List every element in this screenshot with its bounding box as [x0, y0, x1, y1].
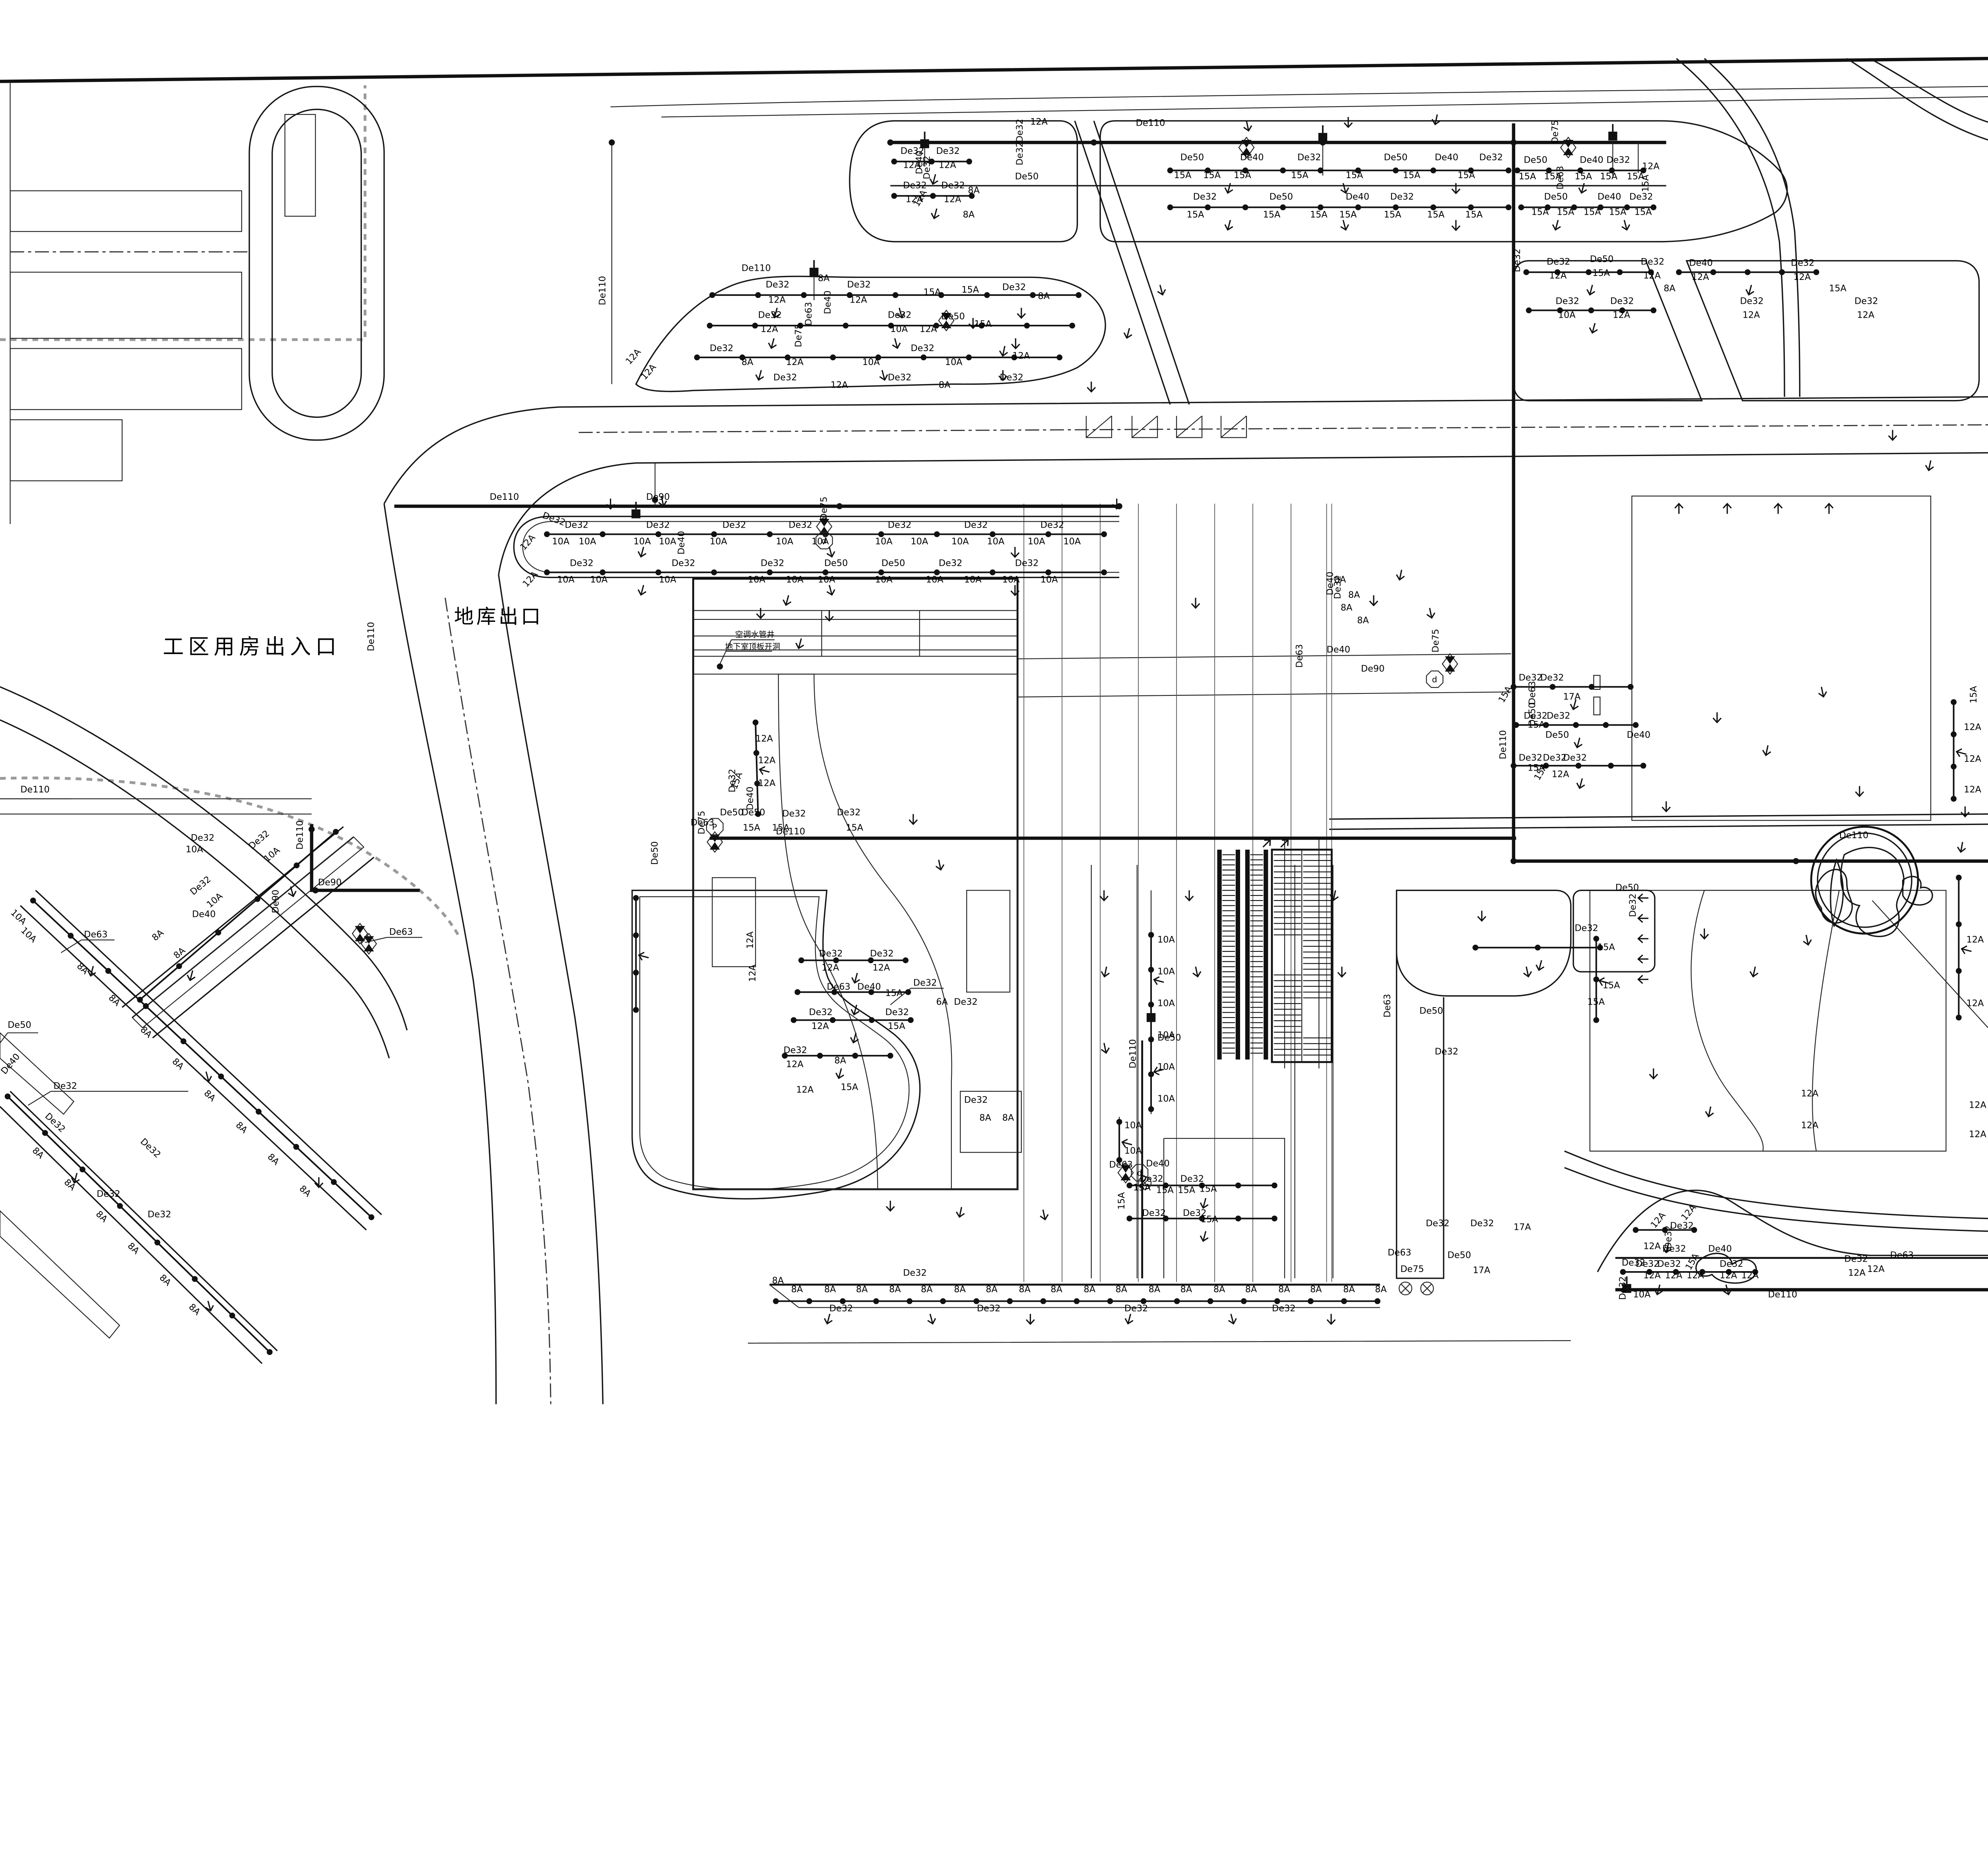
pipe-label: De63 [389, 927, 413, 937]
pipe-label: 12A [1679, 1202, 1699, 1223]
pipe-label: De32 [1610, 296, 1634, 307]
spray-emitter-icon [1638, 935, 1648, 943]
pipe-label: De40 [914, 151, 924, 174]
pipe-label: 10A [911, 536, 928, 547]
spray-emitter-icon [1431, 114, 1441, 125]
pipe-label: 10A [1633, 1289, 1650, 1300]
spray-emitter-icon [1452, 220, 1460, 230]
pipe-label: De32 [964, 1095, 988, 1105]
pipe-label: 10A [964, 575, 982, 585]
pipe-mains [0, 123, 1988, 1289]
pipe-label: 15A [1200, 1184, 1217, 1194]
sprinkler-dot [990, 569, 996, 575]
sprinkler-dot [694, 355, 700, 361]
pipe-label: 12A [1801, 1120, 1819, 1130]
sprinkler-dot [1235, 1182, 1241, 1188]
pipe-label: De32 [954, 997, 977, 1007]
pipe-label: 15A [1574, 171, 1592, 182]
pipe-label: 12A [758, 755, 776, 765]
pipe-label: De32 [148, 1209, 171, 1219]
sprinkler-dot [903, 957, 909, 963]
spray-emitter-icon [1452, 183, 1460, 194]
pipe-label: 15A [1174, 170, 1192, 181]
sprinkler-dot [333, 829, 339, 835]
sprinkler-dot [1593, 1017, 1599, 1023]
pipe-label: 10A [1558, 310, 1576, 320]
pipe-label: 8A [1375, 1284, 1387, 1295]
pump-cross [1423, 1284, 1431, 1293]
pipe-label: De50 [881, 558, 905, 569]
pipe-label: 12A [1643, 1241, 1661, 1251]
pipe-node-dot [887, 140, 893, 146]
pipe-label: De63 [804, 302, 814, 325]
pipe-label: 15A [1291, 170, 1309, 181]
sprinkler-dot [215, 930, 221, 936]
pipe-label: De32 [913, 978, 937, 988]
spray-emitter-icon [1586, 284, 1596, 296]
pipe-label: 17A [1473, 1265, 1490, 1276]
pipe-label: De32 [1002, 282, 1026, 292]
spray-emitter-icon [1749, 966, 1759, 977]
sprinkler-dot [843, 323, 849, 329]
sprinkler-dot [891, 159, 897, 165]
sprinkler-dot [773, 1298, 779, 1304]
pipe-label: De32 [1435, 1046, 1458, 1057]
sprinkler-dot [1375, 1298, 1380, 1304]
spray-emitter-icon [1713, 712, 1721, 722]
sprinkler-dot [1056, 355, 1062, 361]
pipe-label: De110 [598, 276, 608, 305]
boundary-lines [0, 58, 1988, 939]
sprinkler-dot [1593, 977, 1599, 982]
pipe-label: 8A [1002, 1113, 1014, 1123]
pipe-label: 15A [743, 823, 760, 833]
pipe-label: 10A [1063, 536, 1081, 547]
sprinkler-dot [869, 1017, 875, 1023]
pipe-label: 12A [1552, 769, 1569, 780]
pipe-label: 6A [936, 997, 948, 1007]
spray-emitter-icon [1675, 504, 1683, 514]
sprinkler-dot [80, 1167, 85, 1173]
pipe-label: De110 [366, 622, 377, 651]
pipe-label: 15A [1592, 268, 1610, 278]
pipe-label: 15A [1603, 980, 1620, 991]
pipe-label: 12A [1030, 116, 1048, 127]
pipe-label: 8A [856, 1284, 868, 1295]
pipe-label: De32 [1540, 672, 1564, 683]
sprinkler-dot [1608, 763, 1614, 769]
sprinkler-dot [1041, 1298, 1046, 1304]
pipe-label: De32 [1000, 372, 1023, 382]
pipe-label: De110 [1498, 730, 1508, 759]
sprinkler-dot [908, 1017, 914, 1023]
pipe-label: 8A [979, 1113, 991, 1123]
sprinkler-dot [1126, 1182, 1132, 1188]
pipe-label: 10A [1002, 575, 1020, 585]
pipe-label: De32 [977, 1303, 1000, 1314]
pipe-label: De32 [911, 343, 934, 353]
pipe-label: De32 [784, 1045, 807, 1056]
pipe-label: 8A [1348, 590, 1360, 600]
pipe-label: De50 [1015, 171, 1039, 182]
pipe-label: De32 [1512, 249, 1522, 272]
pipe-label: De32 [829, 1303, 853, 1314]
spray-emitter-icon [1100, 890, 1108, 901]
pipe-label: De32 [870, 949, 893, 959]
pipe-label: 15A [923, 287, 941, 297]
spray-emitter-icon [1087, 382, 1095, 392]
sprinkler-dot [1208, 1298, 1213, 1304]
spray-emitter-icon [186, 969, 196, 981]
spray-emitter-icon [1762, 744, 1772, 756]
pipe-label: 10A [951, 536, 969, 547]
spray-emitter-icon [1825, 504, 1833, 514]
callout-ac-pipe-shaft: 空调水管井 [735, 630, 775, 639]
spray-emitter-icon [1889, 430, 1897, 440]
pipe-label: 8A [835, 1055, 846, 1066]
sprinkler-dot [229, 1312, 235, 1318]
sprinkler-dot [254, 896, 260, 902]
spray-emitter-icon [1153, 976, 1165, 986]
pipe-label: De32 [1636, 1259, 1659, 1269]
sprinkler-dot [1586, 269, 1592, 275]
pipe-label: De32 [1547, 256, 1570, 267]
pipe-node-dot [1091, 140, 1097, 146]
sprinkler-dot [1951, 699, 1957, 705]
pipe-label: De40 [1240, 152, 1264, 163]
sprinkler-dot [1101, 531, 1107, 537]
spray-emitter-icon [935, 859, 945, 870]
sprinkler-dot [709, 292, 715, 298]
pipe-label: De110 [490, 492, 519, 502]
pipe-label: 10A [875, 575, 893, 585]
spray-emitter-icon [757, 608, 765, 618]
parking-area-top-left [10, 82, 384, 524]
hatched-plazas [1573, 496, 1946, 1151]
sprinkler-dot [852, 1053, 858, 1059]
sprinkler-dot [1620, 1269, 1626, 1275]
pipe-label: 12A [1794, 272, 1811, 282]
pipe-label: 8A [1180, 1284, 1192, 1295]
pipe-label: 12A [1801, 1089, 1819, 1099]
pipe-label: 12A [1549, 271, 1567, 281]
pipe-label: 8A [791, 1284, 803, 1295]
pipe-label: 8A [1357, 615, 1369, 625]
sprinkler-dot [887, 1053, 893, 1059]
pipe-label: De50 [650, 841, 660, 865]
pipe-node-dot [1510, 140, 1516, 146]
pipe-node-dot [1793, 858, 1799, 864]
pipe-label: De110 [1136, 118, 1165, 128]
pipe-label: 8A [1019, 1284, 1031, 1295]
pipe-label: De50 [8, 1020, 31, 1030]
pipe-label: 12A [624, 347, 643, 367]
quick-coupling-valve-icon [810, 268, 818, 276]
pipe-label: De63 [1890, 1250, 1914, 1260]
sprinkler-dot [1617, 269, 1623, 275]
sprinkler-dot [1603, 722, 1609, 728]
pipe-label: 12A [521, 569, 540, 589]
spray-emitter-icon [1925, 460, 1935, 471]
planting-islands [514, 121, 1988, 1308]
pipe-label: De32 [1193, 192, 1217, 202]
spray-emitter-icon [782, 594, 792, 606]
pipe-label: De75 [793, 324, 804, 347]
sprinkler-dot [1593, 936, 1599, 942]
pipe-label: 10A [557, 575, 575, 585]
sprinkler-dot [1205, 204, 1211, 210]
spray-emitter-icon [1638, 894, 1648, 902]
spray-emitter-icon [1192, 598, 1200, 608]
pipe-label: 8A [954, 1284, 966, 1295]
sprinkler-dot [966, 355, 972, 361]
pipe-label: 15A [1598, 942, 1615, 953]
sprinkler-dot [1523, 269, 1529, 275]
pipe-label: 12A [1967, 934, 1984, 945]
pipe-label: De32 [1426, 1218, 1449, 1229]
pipe-label: De50 [1545, 730, 1569, 740]
pipe-label: 12A [1867, 1264, 1885, 1274]
pipe-label: 12A [747, 964, 758, 982]
pipe-label: 12A [920, 324, 937, 334]
pipe-label: 12A [796, 1085, 814, 1095]
sprinkler-dot [1506, 204, 1512, 210]
pipe-label: 15A [1263, 210, 1281, 220]
pipe-label: 15A [1969, 686, 1979, 703]
pipe-label: De32 [1662, 1244, 1686, 1254]
pipe-label: De63 [1382, 994, 1392, 1017]
spray-emitter-icon [1227, 1313, 1237, 1325]
pipe-label: 8A [968, 185, 980, 196]
pipe-label: De40 [192, 909, 215, 919]
sprinkler-dot [1956, 875, 1962, 881]
spray-emitter-icon [909, 814, 917, 824]
pipe-node-dot [837, 503, 843, 509]
pipe-label: De32 [541, 510, 567, 528]
sprinkler-dot [369, 1214, 375, 1220]
sprinkler-dot [1526, 307, 1532, 313]
pipe-label: 10A [987, 536, 1004, 547]
sprinkler-dot [633, 895, 639, 901]
sprinkler-dot [1393, 167, 1399, 173]
pipe-label: De50 [1615, 882, 1639, 893]
spray-emitter-icon [1620, 219, 1631, 231]
pipe-label: De32 [727, 769, 738, 792]
pipe-label: 8A [30, 1145, 46, 1161]
spray-emitter-icon [1426, 607, 1436, 619]
pipe-label: 12A [761, 324, 778, 334]
pipe-label: 12A [639, 362, 658, 382]
spray-emitter-icon [886, 1201, 894, 1211]
sprinkler-dot [1633, 722, 1639, 728]
pipe-label: De32 [758, 310, 782, 320]
pipe-label: 10A [710, 536, 727, 547]
pipe-label: 10A [205, 891, 225, 910]
spray-emitter-icon [1638, 955, 1648, 963]
spray-emitter-icon [755, 369, 765, 381]
sprinkler-dot [893, 292, 899, 298]
spray-emitter-icon [1242, 120, 1252, 132]
spray-emitter-icon [1156, 284, 1167, 296]
spray-emitter-icon [1370, 595, 1378, 606]
spray-emitter-icon [1327, 1314, 1335, 1324]
sprinkler-dot [794, 989, 800, 995]
pipe-label: De110 [20, 784, 50, 795]
pipe-label: 15A [1640, 175, 1651, 192]
pipe-label: De32 [1606, 155, 1630, 165]
pipe-label: De32 [773, 372, 797, 382]
spray-emitter-icon [1573, 737, 1584, 749]
pipe-label: 15A [1384, 210, 1401, 220]
quick-coupling-valve-icon [631, 509, 640, 518]
pipe-label: De32 [766, 280, 789, 290]
sprinkler-dot [1280, 204, 1286, 210]
sprinkler-dot [1650, 307, 1656, 313]
pipe-label: De32 [565, 520, 588, 530]
pipe-label: 8A [75, 961, 91, 977]
sprinkler-dot [1272, 1215, 1277, 1221]
lateral-pipe [140, 832, 336, 1000]
pipe-label: De32 [247, 828, 272, 851]
pipe-label: 8A [939, 380, 951, 390]
sprinkler-dot [1069, 323, 1075, 329]
sprinkler-dot [1813, 269, 1819, 275]
sprinkler-dot [1535, 945, 1541, 951]
pipe-label: 15A [1458, 170, 1475, 181]
spray-emitter-icon [999, 345, 1009, 357]
sprinkler-dot [1107, 1298, 1113, 1304]
pipe-label: De40 [1689, 258, 1712, 268]
pipe-label: De75 [819, 497, 829, 520]
sprinkler-dot [1779, 269, 1785, 275]
sprinkler-dot [176, 963, 182, 969]
sprinkler-dot [1956, 968, 1962, 974]
spray-emitter-icon [1745, 284, 1755, 296]
pipe-label: De32 [1142, 1208, 1166, 1218]
sprinkler-dot [1589, 684, 1595, 690]
pipe-label: 8A [1116, 1284, 1128, 1295]
pipe-label: De50 [1419, 1006, 1443, 1016]
pipe-label: 15A [1156, 1185, 1174, 1196]
sprinkler-dot [1518, 204, 1524, 210]
spray-emitter-icon [1192, 966, 1202, 977]
pipe-label: De50 [824, 558, 848, 569]
pipe-label: 10A [945, 357, 963, 367]
sprinkler-dot [294, 862, 300, 868]
sprinkler-dot [1951, 764, 1957, 770]
sprinkler-dot [1573, 722, 1579, 728]
pipe-label: 12A [822, 963, 839, 973]
sprinkler-dot [891, 193, 897, 199]
pipe-label: 12A [812, 1021, 829, 1031]
pipe-labels-layer: De110De90De110De110De110De90De90De63De63… [0, 116, 1986, 1317]
spray-emitter-icon [1649, 1068, 1657, 1079]
pipe-label: De50 [941, 311, 965, 322]
pipe-label: 15A [1340, 210, 1357, 220]
pipe-label: 15A [1201, 1214, 1218, 1225]
pipe-label: De32 [570, 558, 593, 569]
pipe-label: 8A [742, 357, 753, 367]
pipe-label: De50 [1157, 1033, 1181, 1043]
symbols-layer: dPdd [309, 114, 1969, 1295]
pipe-label: 8A [818, 273, 830, 283]
pipe-label: 15A [1557, 207, 1574, 217]
pipe-label: 12A [768, 295, 786, 305]
pipe-label: De32 [761, 558, 784, 569]
zone-label-garage-exit: 地库出口 [454, 605, 543, 628]
pipe-label: 8A [1341, 603, 1353, 613]
sprinkler-dot [1242, 204, 1248, 210]
pipe-label: 10A [1157, 1093, 1175, 1104]
pipe-label: 8A [963, 210, 975, 220]
pipe-label: 8A [1149, 1284, 1161, 1295]
pipe-label: De32 [1628, 893, 1638, 917]
pipe-label: De32 [1547, 711, 1570, 721]
pipe-label: De50 [1270, 192, 1293, 202]
sprinkler-dot [1241, 1298, 1247, 1304]
sprinkler-dot [1628, 684, 1634, 690]
sprinkler-dot [930, 193, 936, 199]
spray-emitter-icon [835, 1067, 845, 1079]
pipe-label: 15A [846, 823, 863, 833]
pipe-label: 8A [921, 1284, 933, 1295]
pipe-label: 12A [1967, 998, 1984, 1008]
pipe-label: De32 [888, 310, 911, 320]
pipe-label: De32 [1844, 1254, 1868, 1264]
pipe-label: De32 [1015, 142, 1025, 165]
pipe-label: De32 [1617, 1276, 1628, 1300]
sprinkler-dot [920, 355, 926, 361]
pipe-label: De32 [837, 808, 860, 818]
pipe-label: 12A [1720, 1270, 1737, 1281]
pipe-label: De32 [1720, 1259, 1743, 1269]
sprinkler-dot [143, 1003, 149, 1009]
sprinkler-dot [30, 898, 36, 904]
pipe-label: De40 [745, 786, 755, 810]
sprinkler-dot [1074, 1298, 1080, 1304]
pipe-label: De32 [1390, 192, 1413, 202]
pipe-label: 12A [745, 931, 755, 949]
sprinkler-dot [105, 968, 111, 974]
pipe-label: 12A [1964, 754, 1981, 764]
sprinkler-dot [830, 355, 836, 361]
quick-coupling-valve-icon [1318, 133, 1327, 142]
pipe-label: 8A [150, 927, 166, 943]
pipe-label: De63 [1555, 166, 1566, 189]
pipe-label: 10A [1124, 1146, 1142, 1156]
sprinkler-dot [907, 1298, 912, 1304]
pipe-label: 15A [1465, 210, 1483, 220]
spray-emitter-icon [1705, 1106, 1714, 1117]
zone-label-work-area: 工区用房出入口 [163, 635, 341, 659]
pipe-label: 10A [875, 536, 893, 547]
pipe-label: De40 [1327, 645, 1350, 655]
pipe-label: De110 [1839, 830, 1869, 841]
pipe-label: De40 [1346, 192, 1369, 202]
callout-slab-opening: 地下室顶板开洞 [725, 642, 780, 651]
sprinkler-dot [1472, 945, 1478, 951]
pipe-label: De40 [1708, 1244, 1732, 1254]
spray-emitter-icon [1578, 182, 1588, 194]
sprinkler-dot [1101, 569, 1107, 575]
pipe-label: 12A [1692, 272, 1709, 282]
sprinkler-dot [873, 1298, 879, 1304]
sprinkler-dot [633, 932, 639, 938]
pipe-label: 12A [1964, 784, 1981, 795]
pipe-node-dot [1116, 503, 1122, 509]
pipe-label: 12A [944, 194, 961, 205]
pipe-label: 8A [1038, 291, 1050, 301]
